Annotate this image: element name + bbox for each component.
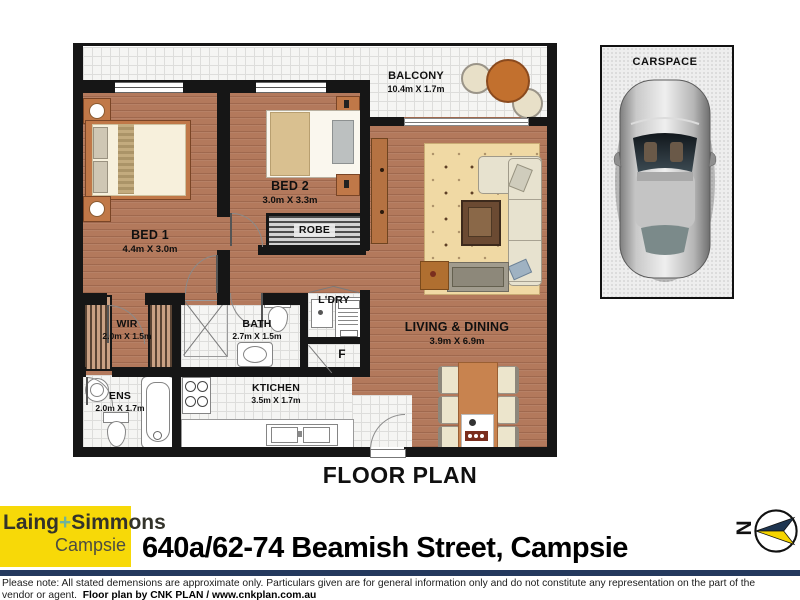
- tub-drain: [153, 431, 162, 440]
- wall: [112, 367, 181, 377]
- room-label-ens: ENS 2.0m X 1.7m: [80, 390, 160, 414]
- agency-name: Laing+Simmons: [3, 511, 127, 535]
- sink-bowl: [303, 427, 330, 443]
- lamp-icon: [89, 103, 105, 119]
- sink-tap: [298, 431, 302, 437]
- room-label-bath: BATH 2.7m X 1.5m: [217, 318, 297, 342]
- wall: [404, 447, 557, 457]
- tv-icon: [452, 267, 504, 287]
- footer-divider: [0, 570, 800, 576]
- agency-logo: Laing+Simmons Campsie: [0, 506, 131, 567]
- room-label-living: LIVING & DINING 3.9m X 6.9m: [397, 320, 517, 348]
- window-icon: [115, 82, 183, 93]
- door-leaf: [230, 213, 232, 246]
- lamp-icon: [89, 201, 105, 217]
- lamp-icon: [344, 180, 349, 188]
- cabinet-handle: [380, 168, 384, 172]
- wall: [547, 43, 557, 457]
- wall: [258, 245, 366, 255]
- tray-dot: [474, 434, 478, 438]
- window-icon: [256, 82, 326, 93]
- car-top-view-icon: [613, 76, 717, 286]
- carspace-label: CARSPACE: [600, 56, 730, 68]
- washer-slot: [340, 330, 358, 337]
- property-address: 640a/62-74 Beamish Street, Campsie: [142, 532, 628, 565]
- entry-door-leaf: [370, 449, 406, 458]
- room-label-laundry: L'DRY: [304, 294, 364, 307]
- burner-icon: [197, 381, 208, 392]
- dining-chair-icon: [496, 366, 519, 394]
- pillow-icon: [332, 120, 354, 164]
- disclaimer-line2-prefix: vendor or agent.: [2, 590, 77, 600]
- disclaimer-line1: Please note: All stated demensions are a…: [2, 578, 755, 589]
- wall: [217, 250, 230, 305]
- room-label-fridge: F: [332, 347, 352, 362]
- sliding-door-icon: [404, 118, 529, 126]
- pillow-icon: [93, 161, 108, 193]
- sink-bowl: [271, 427, 298, 443]
- logo-plus-icon: +: [59, 511, 71, 534]
- balcony-railing: [73, 43, 557, 46]
- side-table-dot: [430, 271, 436, 277]
- wall: [305, 337, 363, 344]
- balcony-floor: [83, 47, 368, 81]
- room-label-wir: WIR 2.0m X 1.5m: [87, 318, 167, 342]
- door-leaf: [216, 255, 218, 293]
- bed-runner: [118, 124, 134, 194]
- room-label-bed1: BED 1 4.4m X 3.0m: [100, 228, 200, 256]
- floor-plan-title: FLOOR PLAN: [300, 462, 500, 489]
- lamp-icon: [344, 100, 349, 108]
- coffee-table-top: [468, 207, 492, 237]
- wall: [73, 447, 370, 457]
- tray-dot: [468, 434, 472, 438]
- wall: [527, 117, 547, 126]
- room-label-bed2: BED 2 3.0m X 3.3m: [240, 179, 340, 207]
- room-label-kitchen: KTICHEN 3.5m X 1.7m: [226, 382, 326, 406]
- pillow-icon: [93, 127, 108, 159]
- washer-drum: [338, 312, 358, 326]
- burner-icon: [185, 396, 196, 407]
- wall: [73, 293, 107, 305]
- bed2-blanket: [270, 112, 310, 176]
- dining-chair-icon: [496, 396, 519, 424]
- plan-credit: Floor plan by CNK PLAN / www.cnkplan.com…: [83, 590, 317, 600]
- north-arrow-icon: [753, 507, 799, 555]
- tray-dot: [480, 434, 484, 438]
- floor-plan-page: BALCONY 10.4m X 1.7m BED 1 4.4m X 3.0m B…: [0, 0, 800, 600]
- room-label-balcony: BALCONY 10.4m X 1.7m: [366, 70, 466, 95]
- basin-bowl: [243, 346, 267, 363]
- tub-drain: [318, 310, 323, 315]
- wall: [181, 367, 370, 377]
- bowl-icon: [469, 419, 476, 426]
- north-label: N: [731, 520, 755, 535]
- burner-icon: [197, 396, 208, 407]
- room-label-robe: ROBE: [266, 219, 363, 239]
- disclaimer-line2: vendor or agent. Floor plan by CNK PLAN …: [2, 590, 316, 600]
- outdoor-table-icon: [486, 59, 530, 103]
- burner-icon: [185, 381, 196, 392]
- cabinet-handle: [380, 210, 384, 214]
- wall: [73, 367, 86, 377]
- wall: [217, 80, 230, 217]
- agency-branch: Campsie: [55, 535, 126, 556]
- hall-cabinet-icon: [371, 138, 388, 244]
